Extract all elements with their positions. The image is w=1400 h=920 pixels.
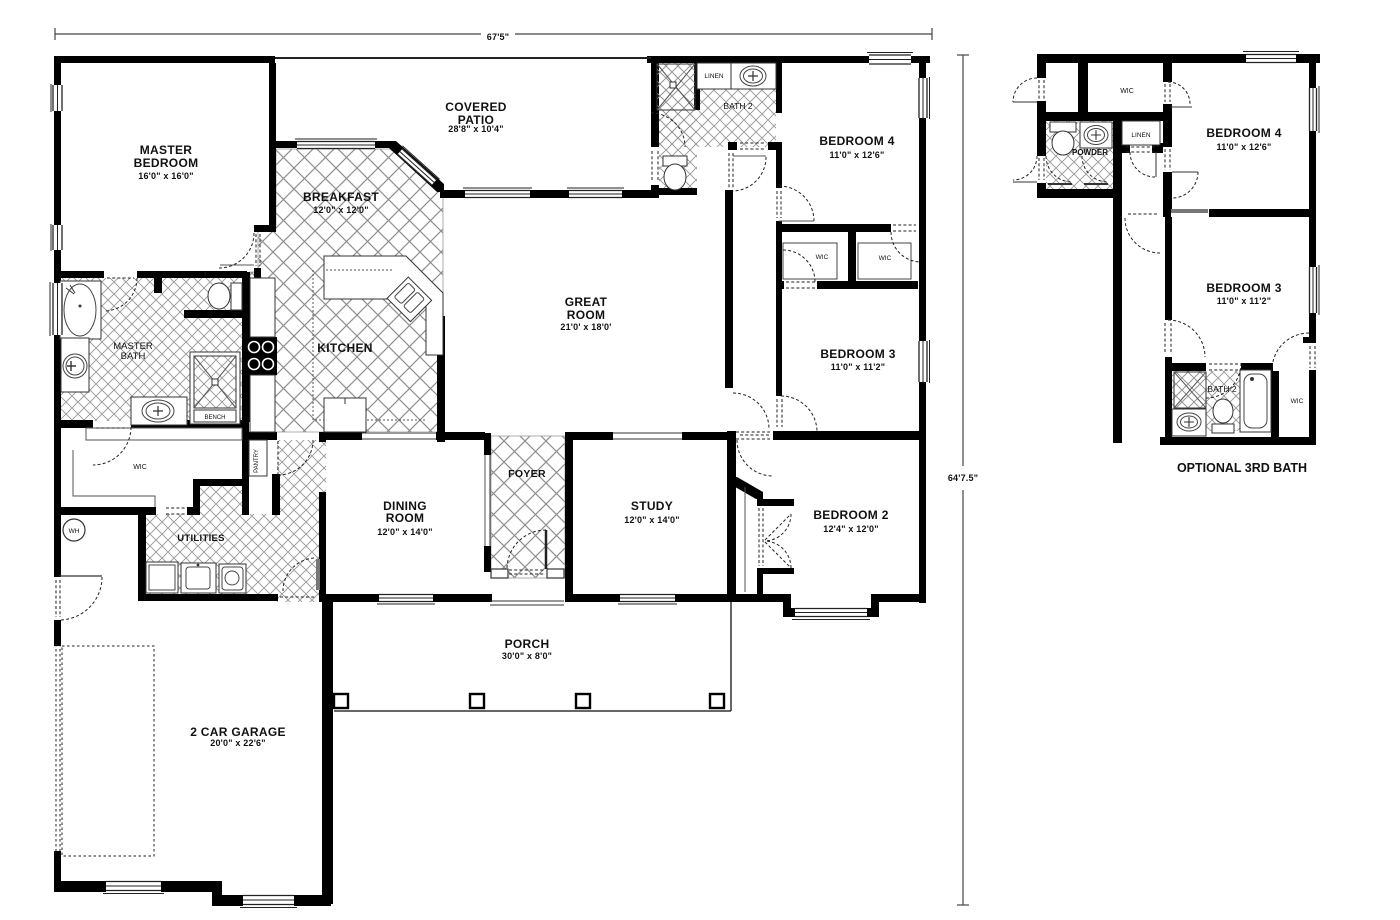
svg-text:COVERED: COVERED (445, 100, 506, 114)
svg-text:12'0" x 12'0": 12'0" x 12'0" (313, 205, 368, 215)
svg-text:30'0" x 8'0": 30'0" x 8'0" (502, 651, 552, 661)
svg-text:POWDER: POWDER (1072, 148, 1108, 157)
svg-text:BEDROOM 2: BEDROOM 2 (813, 508, 888, 522)
svg-text:BATH: BATH (121, 351, 146, 362)
svg-text:WH: WH (69, 528, 80, 535)
svg-text:12'0" x 14'0": 12'0" x 14'0" (377, 527, 432, 537)
svg-text:BREAKFAST: BREAKFAST (303, 190, 379, 204)
svg-text:2 CAR GARAGE: 2 CAR GARAGE (190, 725, 286, 739)
svg-text:LINEN: LINEN (704, 73, 723, 80)
svg-text:BENCH: BENCH (204, 415, 225, 421)
svg-text:BEDROOM 3: BEDROOM 3 (820, 347, 895, 361)
svg-text:PANTRY: PANTRY (254, 449, 260, 473)
svg-text:WIC: WIC (816, 254, 829, 261)
svg-text:BEDROOM: BEDROOM (134, 156, 199, 170)
svg-text:12'4" x 12'0": 12'4" x 12'0" (823, 524, 878, 534)
svg-text:64'7.5": 64'7.5" (948, 473, 978, 483)
svg-text:BATH 2: BATH 2 (723, 101, 752, 111)
svg-text:FOYER: FOYER (508, 468, 546, 480)
svg-text:ROOM: ROOM (567, 308, 606, 322)
svg-text:16'0" x 16'0": 16'0" x 16'0" (138, 171, 193, 181)
svg-text:MASTER: MASTER (140, 143, 192, 157)
svg-text:KITCHEN: KITCHEN (317, 341, 372, 355)
svg-text:WIC: WIC (1291, 398, 1304, 405)
svg-text:67'5": 67'5" (487, 32, 509, 42)
svg-text:WIC: WIC (133, 464, 147, 471)
svg-text:BEDROOM 4: BEDROOM 4 (819, 134, 894, 148)
svg-text:BEDROOM 4: BEDROOM 4 (1206, 126, 1281, 140)
svg-text:21'0' x 18'0': 21'0' x 18'0' (560, 322, 611, 332)
svg-text:BATH 2: BATH 2 (1207, 384, 1236, 394)
svg-text:STUDY: STUDY (631, 499, 673, 513)
svg-text:OPTIONAL 3RD BATH: OPTIONAL 3RD BATH (1177, 461, 1307, 475)
svg-text:UTILITIES: UTILITIES (177, 533, 225, 544)
svg-text:GREAT: GREAT (565, 295, 608, 309)
svg-text:WIC: WIC (879, 255, 892, 262)
svg-text:PORCH: PORCH (505, 637, 550, 651)
svg-text:ROOM: ROOM (386, 511, 425, 525)
svg-text:LINEN: LINEN (1131, 132, 1150, 139)
svg-text:WIC: WIC (1120, 88, 1134, 95)
svg-text:11'0" x 11'2": 11'0" x 11'2" (1217, 296, 1271, 306)
svg-text:20'0" x 22'6": 20'0" x 22'6" (210, 738, 265, 748)
svg-text:11'0" x 11'2": 11'0" x 11'2" (831, 362, 885, 372)
svg-text:28'8" x 10'4": 28'8" x 10'4" (448, 124, 503, 134)
svg-text:12'0" x 14'0": 12'0" x 14'0" (624, 515, 679, 525)
svg-text:BEDROOM 3: BEDROOM 3 (1206, 281, 1281, 295)
svg-text:11'0" x 12'6": 11'0" x 12'6" (830, 150, 885, 160)
svg-text:11'0" x 12'6": 11'0" x 12'6" (1217, 142, 1272, 152)
